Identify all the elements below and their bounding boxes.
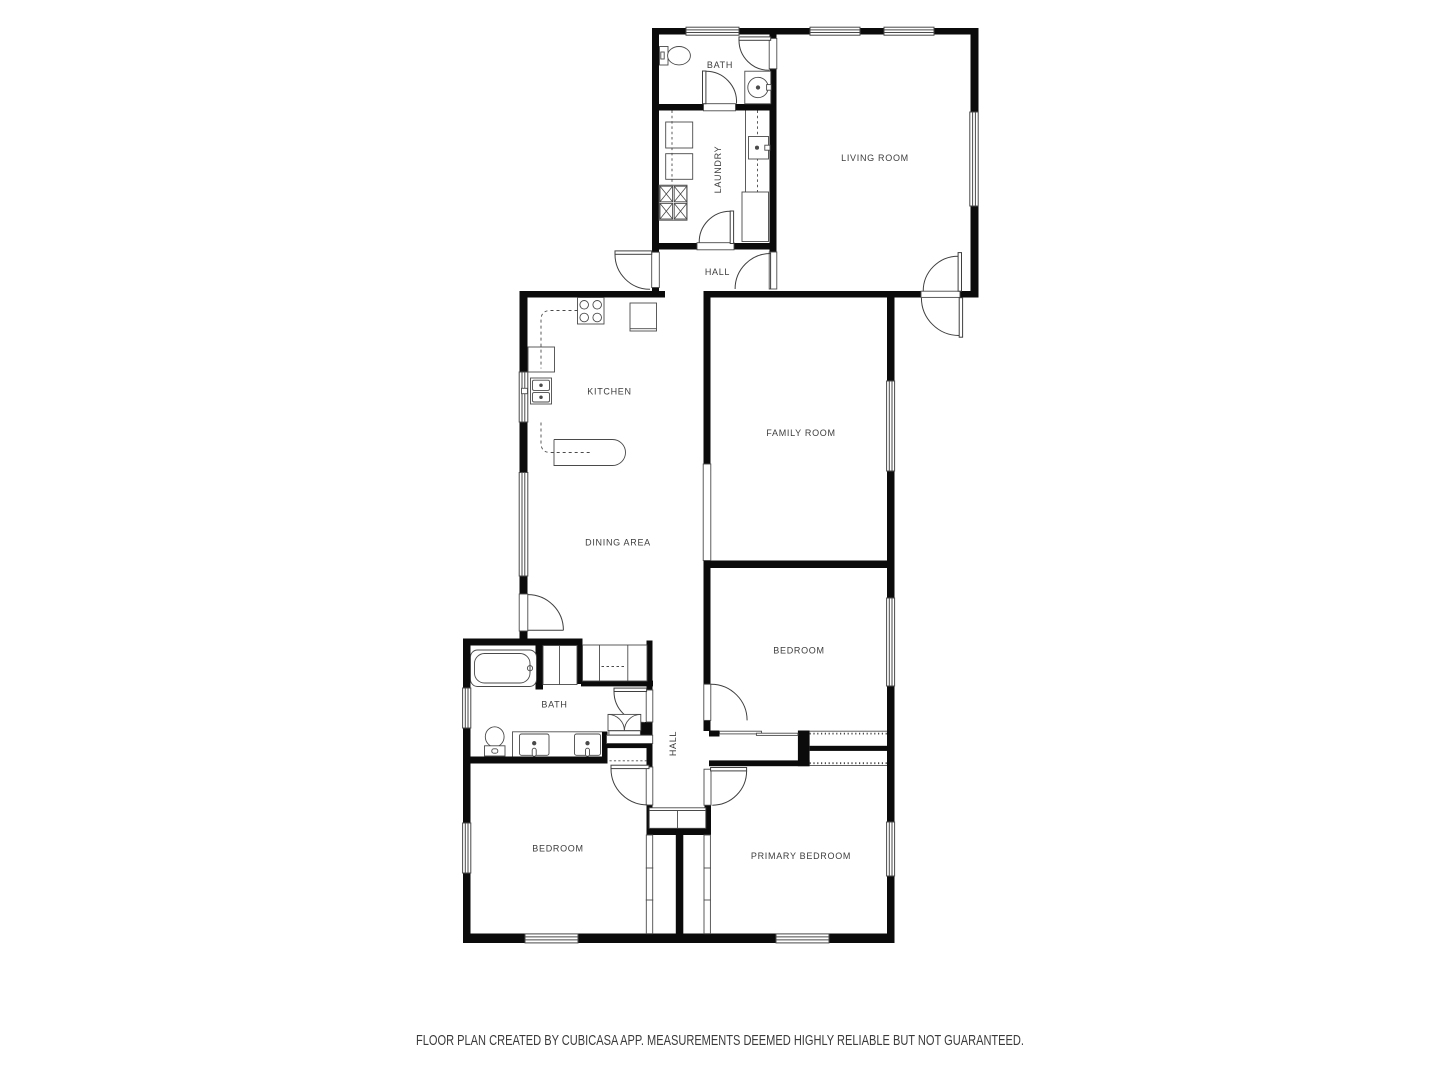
svg-text:BEDROOM: BEDROOM (532, 844, 583, 854)
svg-text:PRIMARY BEDROOM: PRIMARY BEDROOM (751, 851, 851, 861)
svg-text:HALL: HALL (705, 267, 730, 277)
svg-text:KITCHEN: KITCHEN (587, 386, 631, 396)
svg-text:LAUNDRY: LAUNDRY (713, 146, 723, 194)
svg-text:HALL: HALL (668, 731, 678, 756)
svg-text:DINING AREA: DINING AREA (585, 537, 651, 547)
svg-text:BATH: BATH (707, 60, 733, 70)
svg-text:BATH: BATH (541, 699, 567, 709)
svg-text:LIVING ROOM: LIVING ROOM (841, 153, 909, 163)
svg-text:FAMILY ROOM: FAMILY ROOM (766, 428, 835, 438)
svg-text:BEDROOM: BEDROOM (773, 645, 824, 655)
